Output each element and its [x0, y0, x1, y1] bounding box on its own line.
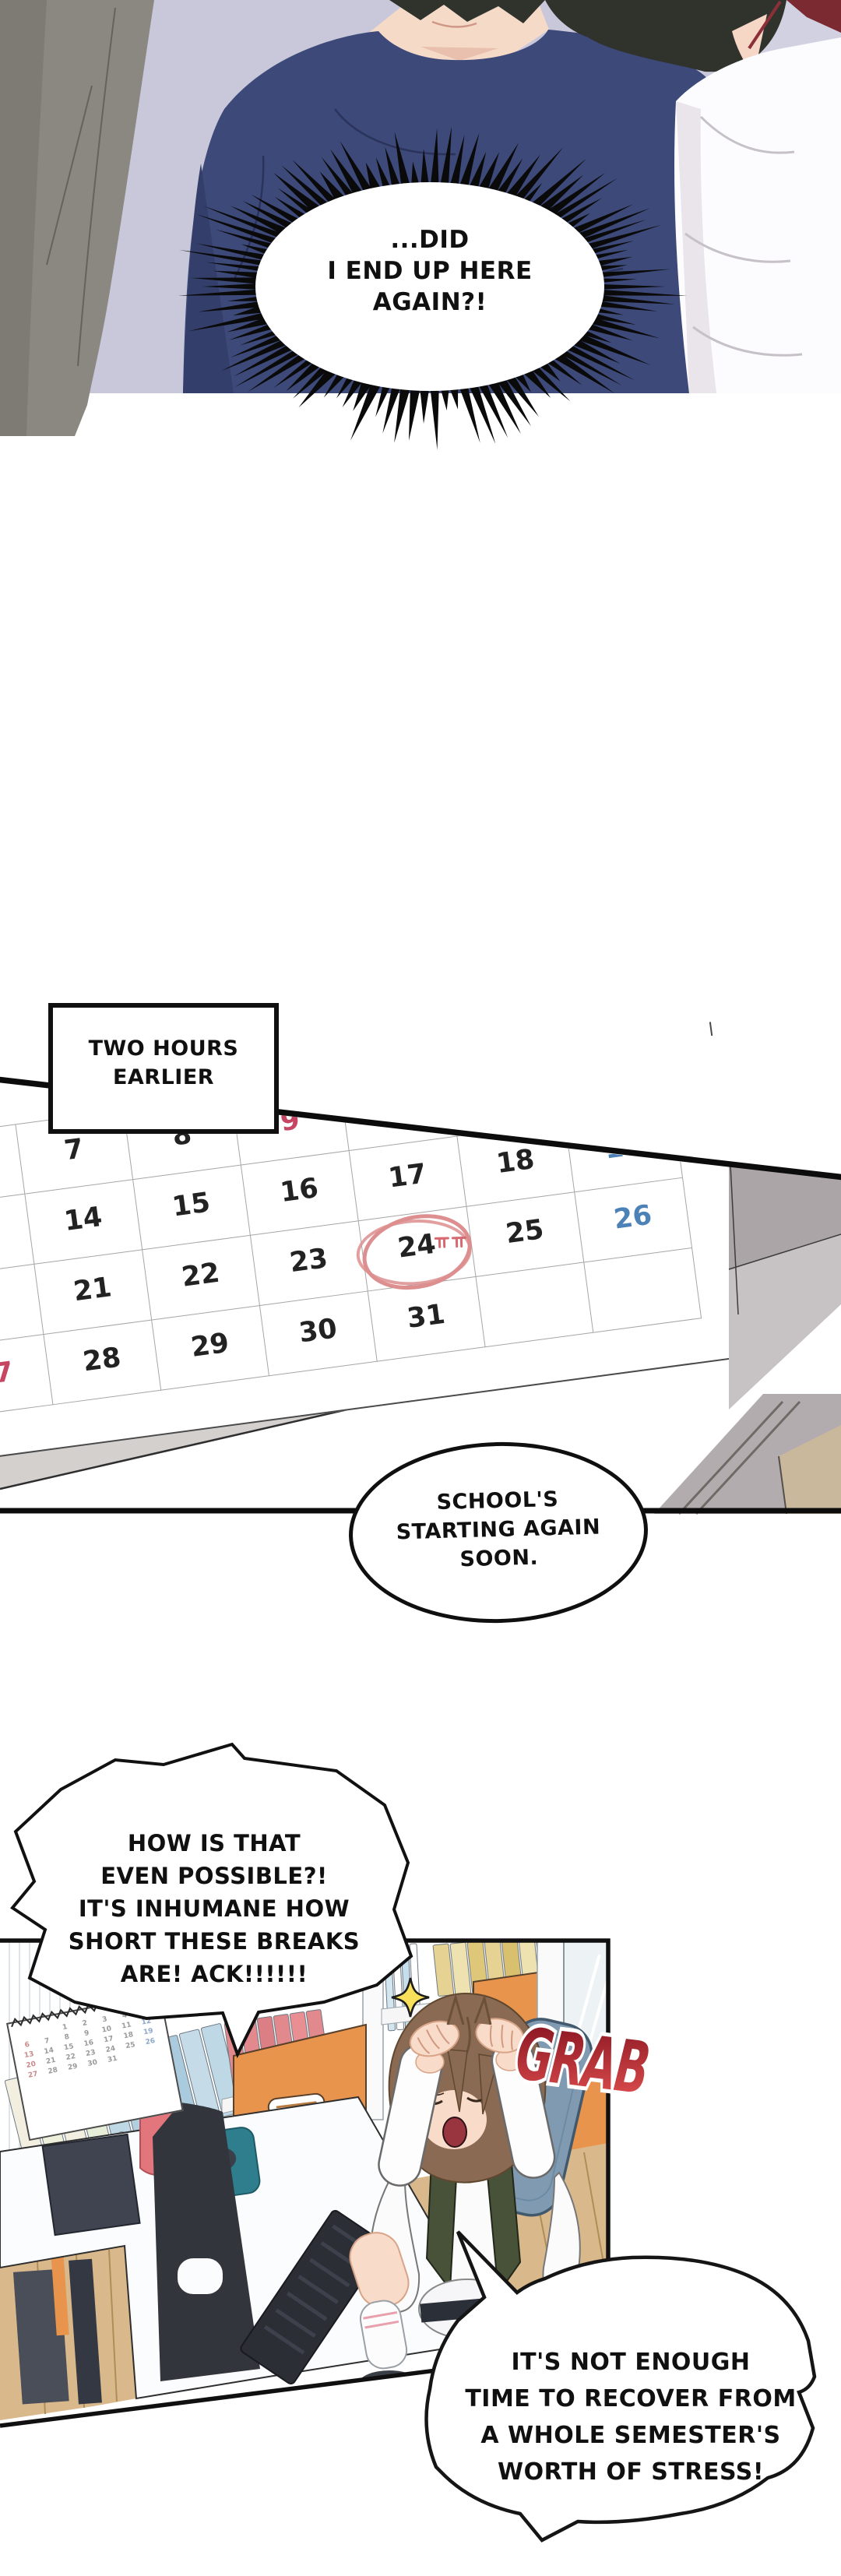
scream-bubble-text: ...DID I END UP HERE AGAIN?!: [297, 224, 562, 318]
chair-base-items: [12, 2255, 102, 2409]
right-wall-grays: [729, 1165, 841, 1409]
stress-bubble-text: IT'S NOT ENOUGH TIME TO RECOVER FROM A W…: [456, 2344, 806, 2490]
caption-line: TWO HOURS: [53, 1034, 274, 1063]
speech-line: AGAIN?!: [297, 287, 562, 318]
speech-line: IT'S NOT ENOUGH: [456, 2344, 806, 2381]
sfx-grab-text: GRAB: [512, 2012, 652, 2111]
speech-line: WORTH OF STRESS!: [456, 2454, 806, 2490]
school-speech-bubble: SCHOOL'S STARTING AGAIN SOON.: [347, 1438, 650, 1627]
speech-line: A WHOLE SEMESTER'S: [456, 2417, 806, 2454]
speech-line: SHORT THESE BREAKS: [31, 1925, 397, 1958]
speech-line: TIME TO RECOVER FROM: [456, 2381, 806, 2417]
bottom-right-grays: [654, 1394, 841, 1514]
speech-line: ...DID: [297, 224, 562, 255]
caption-line: EARLIER: [53, 1063, 274, 1092]
stand-handle-hole: [178, 2258, 223, 2294]
speech-line: EVEN POSSIBLE?!: [31, 1860, 397, 1892]
school-bubble-text: SCHOOL'S STARTING AGAIN SOON.: [350, 1442, 645, 1577]
caption-text: TWO HOURS EARLIER: [53, 1008, 274, 1092]
speech-line: ARE! ACK!!!!!!: [31, 1958, 397, 1990]
open-mouth: [443, 2117, 466, 2147]
speech-line: HOW IS THAT: [31, 1827, 397, 1860]
speech-line: IT'S INHUMANE HOW: [31, 1892, 397, 1925]
how-bubble-text: HOW IS THAT EVEN POSSIBLE?! IT'S INHUMAN…: [31, 1827, 397, 1990]
speech-line: I END UP HERE: [297, 255, 562, 287]
caption-box: TWO HOURS EARLIER: [48, 1003, 279, 1134]
desk-speaker: [43, 2134, 140, 2235]
